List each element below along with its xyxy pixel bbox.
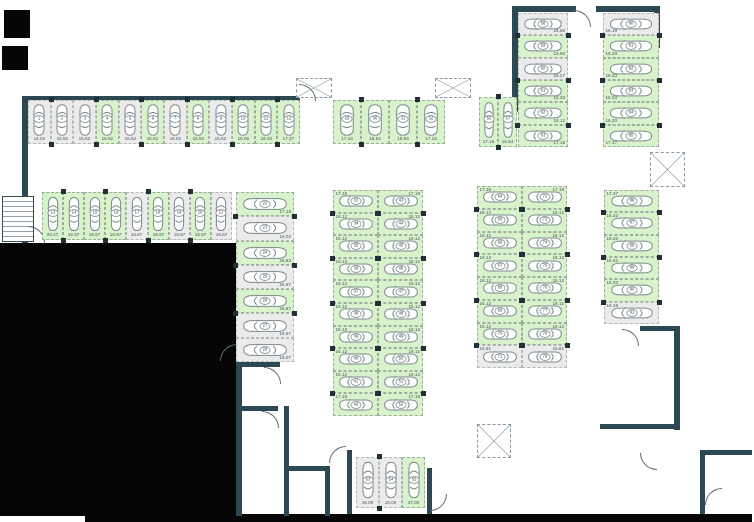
parking-space-65[interactable]: 6516.12 [477, 209, 522, 232]
space-size-label: 16.12 [480, 324, 492, 330]
parking-space-85[interactable]: 8517.37 [603, 125, 659, 147]
space-size-label: 16.67 [128, 232, 146, 238]
door-swing-icon [705, 488, 722, 505]
space-size-label: 17.18 [336, 395, 348, 401]
door-swing-icon [329, 446, 346, 463]
parking-space-47[interactable]: 4716.12 [378, 280, 423, 303]
space-size-label: 16.66 [554, 51, 566, 57]
parking-space-67[interactable]: 6716.12 [477, 254, 522, 277]
parking-trio-53-55: 5316.005416.005517.00 [356, 457, 425, 508]
space-size-label: 17.18 [554, 140, 566, 146]
space-size-label: 16.19 [607, 303, 619, 309]
space-size-label: 16.67 [192, 232, 210, 238]
space-size-label: 16.12 [409, 304, 421, 310]
bottom-wall [85, 514, 752, 522]
space-size-label: 16.33 [606, 118, 618, 124]
wall-segment [236, 406, 278, 411]
parking-space-25[interactable]: 2516.67 [236, 265, 294, 289]
parking-space-62[interactable]: 6216.12 [518, 102, 568, 124]
parking-space-10[interactable]: 1016.06 [232, 100, 255, 144]
space-number: 49 [395, 333, 406, 341]
parking-col-58-63: 5816.655916.666016.276116.336216.126317.… [518, 13, 568, 147]
parking-space-20[interactable]: 2016.67 [190, 192, 211, 240]
parking-space-90[interactable]: 9016.33 [604, 279, 659, 301]
space-size-label: 16.33 [606, 73, 618, 79]
parking-space-87[interactable]: 8716.33 [604, 212, 659, 234]
space-size-label: 16.67 [65, 232, 83, 238]
space-number: 47 [395, 288, 406, 296]
space-size-label: 16.12 [336, 259, 348, 265]
parking-col-22-28: 2217.182316.022416.632516.672616.672716.… [236, 192, 294, 362]
space-size-label: 16.12 [336, 304, 348, 310]
space-number: 48 [395, 310, 406, 318]
space-size-label: 17.37 [279, 136, 298, 142]
space-size-label: 14.04 [30, 136, 49, 142]
space-number: 70 [494, 330, 505, 338]
parking-space-36[interactable]: 3616.12 [333, 258, 378, 281]
parking-space-50[interactable]: 5016.12 [378, 348, 423, 371]
vent-shaft-icon [477, 424, 511, 458]
parking-space-3[interactable]: 315.52 [73, 100, 96, 144]
parking-space-69[interactable]: 6916.12 [477, 300, 522, 323]
space-size-label: 16.12 [553, 301, 565, 307]
space-size-label: 16.12 [553, 278, 565, 284]
space-number: 86 [626, 197, 637, 205]
parking-space-24[interactable]: 2416.63 [236, 241, 294, 265]
vent-shaft-icon [435, 78, 471, 98]
parking-space-83[interactable]: 8316.33 [603, 80, 659, 102]
parking-space-58[interactable]: 5816.65 [518, 13, 568, 35]
space-size-label: 16.81 [480, 346, 492, 352]
parking-space-21[interactable]: 2116.67 [211, 192, 232, 240]
door-swing-icon [262, 411, 279, 428]
space-size-label: 15.52 [189, 136, 208, 142]
parking-row-1-12: 114.04215.52315.52415.52515.52615.52715.… [28, 100, 300, 144]
door-swing-icon [264, 367, 281, 384]
space-size-label: 17.16 [335, 136, 359, 142]
space-size-label: 16.65 [554, 29, 566, 35]
door-swing-icon [640, 453, 657, 470]
space-number: 43 [395, 197, 406, 205]
space-size-label: 16.54 [363, 136, 387, 142]
parking-space-37[interactable]: 3716.12 [333, 280, 378, 303]
parking-space-26[interactable]: 2616.67 [236, 289, 294, 313]
space-number: 60 [537, 65, 548, 73]
parking-space-43[interactable]: 4317.18 [378, 190, 423, 213]
space-size-label: 16.00 [381, 500, 400, 506]
wall-segment [284, 406, 289, 516]
parking-space-45[interactable]: 4516.12 [378, 235, 423, 258]
parking-space-88[interactable]: 8816.33 [604, 235, 659, 257]
space-size-label: 16.12 [409, 349, 421, 355]
space-size-label: 16.67 [149, 232, 167, 238]
space-number: 36 [350, 265, 361, 273]
space-number: 82 [625, 65, 636, 73]
space-size-label: 17.18 [480, 187, 492, 193]
space-number: 65 [494, 216, 505, 224]
parking-space-54[interactable]: 5416.00 [379, 457, 402, 508]
space-size-label: 17.00 [404, 500, 423, 506]
wall-segment [347, 450, 352, 514]
space-size-label: 16.67 [280, 331, 292, 337]
parking-space-74[interactable]: 7416.12 [522, 232, 567, 255]
space-size-label: 17.18 [280, 210, 292, 216]
space-number: 67 [494, 262, 505, 270]
space-size-label: 16.81 [553, 346, 565, 352]
parking-col-43-52: 4317.184416.124516.124616.124716.124816.… [378, 190, 423, 416]
space-size-label: 16.12 [336, 214, 348, 220]
space-size-label: 16.33 [607, 214, 619, 220]
parking-space-6[interactable]: 615.52 [141, 100, 164, 144]
space-number: 46 [395, 265, 406, 273]
space-size-label: 16.33 [607, 236, 619, 242]
space-number: 52 [395, 401, 406, 409]
parking-space-61[interactable]: 6116.33 [518, 80, 568, 102]
parking-space-81[interactable]: 8116.33 [603, 35, 659, 57]
parking-space-19[interactable]: 1916.67 [169, 192, 190, 240]
parking-space-82[interactable]: 8216.33 [603, 58, 659, 80]
space-number: 79 [539, 353, 550, 361]
parking-space-22[interactable]: 2217.18 [236, 192, 294, 216]
space-number: 73 [539, 216, 550, 224]
parking-space-60[interactable]: 6016.27 [518, 58, 568, 80]
parking-space-13[interactable]: 1320.27 [42, 192, 63, 240]
parking-space-27[interactable]: 2716.67 [236, 313, 294, 337]
space-number: 77 [539, 307, 550, 315]
parking-space-71[interactable]: 7116.81 [477, 345, 522, 368]
wall-segment [674, 326, 680, 430]
space-number: 71 [494, 353, 505, 361]
door-swing-icon [574, 10, 591, 27]
space-size-label: 16.12 [336, 282, 348, 288]
space-size-label: 17.18 [336, 191, 348, 197]
parking-space-46[interactable]: 4616.12 [378, 258, 423, 281]
obscured-area [4, 10, 30, 38]
parking-floor-plan: 114.04215.52315.52415.52515.52615.52715.… [0, 0, 754, 522]
space-size-label: 16.12 [553, 233, 565, 239]
parking-space-23[interactable]: 2316.02 [236, 216, 294, 240]
space-size-label: 17.18 [553, 187, 565, 193]
parking-pair-56-57: 5617.165716.54 [479, 97, 517, 147]
parking-space-59[interactable]: 5916.66 [518, 35, 568, 57]
space-number: 24 [259, 249, 270, 257]
wall-segment [242, 362, 280, 367]
space-number: 88 [626, 242, 637, 250]
space-size-label: 16.12 [554, 118, 566, 124]
space-size-label: 16.33 [257, 136, 276, 142]
parking-space-80[interactable]: 8016.19 [603, 13, 659, 35]
space-number: 85 [625, 132, 636, 140]
wall-segment [284, 466, 330, 471]
parking-space-1[interactable]: 114.04 [28, 100, 51, 144]
space-size-label: 15.52 [121, 136, 140, 142]
space-size-label: 17.16 [481, 139, 497, 145]
space-number: 14 [68, 209, 79, 217]
space-size-label: 15.52 [143, 136, 162, 142]
space-size-label: 16.33 [606, 96, 618, 102]
space-size-label: 15.52 [75, 136, 94, 142]
space-size-label: 16.63 [280, 258, 292, 264]
space-size-label: 16.67 [213, 232, 231, 238]
parking-col-80-85: 8016.198116.338216.338316.338416.338517.… [603, 13, 659, 147]
parking-space-51[interactable]: 5116.12 [378, 371, 423, 394]
parking-space-91[interactable]: 9116.19 [604, 302, 659, 324]
parking-row-29-32: 2917.163016.543116.543217.16 [333, 100, 445, 144]
space-number: 56 [483, 115, 494, 123]
space-size-label: 16.54 [391, 136, 415, 142]
space-size-label: 16.12 [480, 233, 492, 239]
space-size-label: 16.67 [280, 282, 292, 288]
parking-space-28[interactable]: 2816.07 [236, 338, 294, 362]
space-number: 37 [350, 288, 361, 296]
space-size-label: 16.33 [554, 96, 566, 102]
space-number: 25 [259, 273, 270, 281]
space-size-label: 16.12 [553, 210, 565, 216]
parking-space-70[interactable]: 7016.12 [477, 323, 522, 346]
parking-space-29[interactable]: 2917.16 [333, 100, 361, 144]
space-number: 53 [362, 476, 373, 484]
parking-col-86-91: 8617.378716.338816.338916.339016.339116.… [604, 190, 659, 324]
parking-space-9[interactable]: 915.52 [209, 100, 232, 144]
parking-space-77[interactable]: 7716.12 [522, 300, 567, 323]
parking-space-48[interactable]: 4816.12 [378, 303, 423, 326]
space-size-label: 17.18 [409, 395, 421, 401]
parking-space-7[interactable]: 715.52 [164, 100, 187, 144]
space-number: 91 [626, 309, 637, 317]
obscured-area [0, 243, 237, 516]
space-size-label: 16.12 [336, 372, 348, 378]
space-size-label: 16.67 [170, 232, 188, 238]
space-size-label: 16.02 [280, 234, 292, 240]
space-number: 44 [395, 220, 406, 228]
parking-space-33[interactable]: 3317.18 [333, 190, 378, 213]
space-number: 57 [502, 115, 513, 123]
space-number: 41 [350, 378, 361, 386]
parking-space-4[interactable]: 415.52 [96, 100, 119, 144]
space-number: 78 [539, 330, 550, 338]
space-number: 75 [539, 262, 550, 270]
space-number: 33 [350, 197, 361, 205]
parking-space-18[interactable]: 1816.67 [148, 192, 169, 240]
space-size-label: 16.12 [409, 372, 421, 378]
space-number: 39 [350, 333, 361, 341]
space-size-label: 16.06 [234, 136, 253, 142]
parking-space-42[interactable]: 4217.18 [333, 393, 378, 416]
parking-col-64-71: 6417.186516.126616.126716.126816.126916.… [477, 186, 522, 368]
vent-shaft-icon [650, 152, 685, 187]
parking-space-63[interactable]: 6317.18 [518, 125, 568, 147]
space-size-label: 16.12 [336, 327, 348, 333]
parking-space-12[interactable]: 1217.37 [277, 100, 300, 144]
space-number: 66 [494, 239, 505, 247]
space-size-label: 16.12 [336, 236, 348, 242]
space-size-label: 16.12 [480, 301, 492, 307]
space-number: 38 [350, 310, 361, 318]
wall-segment [512, 6, 576, 12]
parking-space-16[interactable]: 1616.67 [105, 192, 126, 240]
parking-space-86[interactable]: 8617.37 [604, 190, 659, 212]
space-size-label: 16.33 [607, 258, 619, 264]
parking-space-73[interactable]: 7316.12 [522, 209, 567, 232]
space-size-label: 16.12 [336, 349, 348, 355]
parking-space-2[interactable]: 215.52 [51, 100, 74, 144]
parking-space-39[interactable]: 3916.12 [333, 326, 378, 349]
space-size-label: 17.37 [607, 191, 619, 197]
wall-segment [596, 6, 660, 12]
space-size-label: 16.07 [280, 355, 292, 361]
parking-space-75[interactable]: 7516.12 [522, 254, 567, 277]
space-size-label: 15.52 [98, 136, 117, 142]
space-size-label: 16.33 [606, 51, 618, 57]
parking-col-72-79: 7217.187316.127416.127516.127616.127716.… [522, 186, 567, 368]
space-size-label: 16.12 [553, 255, 565, 261]
wall-segment [700, 450, 752, 455]
parking-space-68[interactable]: 6816.12 [477, 277, 522, 300]
parking-space-15[interactable]: 1516.67 [84, 192, 105, 240]
parking-space-14[interactable]: 1416.67 [63, 192, 84, 240]
parking-space-38[interactable]: 3816.12 [333, 303, 378, 326]
parking-col-33-42: 3317.183416.123516.123616.123716.123816.… [333, 190, 378, 416]
space-number: 55 [408, 476, 419, 484]
parking-space-49[interactable]: 4916.12 [378, 326, 423, 349]
space-size-label: 16.12 [409, 259, 421, 265]
obscured-area [2, 46, 28, 70]
space-size-label: 16.67 [280, 307, 292, 313]
space-size-label: 16.12 [480, 210, 492, 216]
parking-space-41[interactable]: 4116.12 [333, 371, 378, 394]
parking-space-11[interactable]: 1116.33 [255, 100, 278, 144]
space-number: 74 [539, 239, 550, 247]
space-size-label: 17.18 [409, 191, 421, 197]
parking-space-53[interactable]: 5316.00 [356, 457, 379, 508]
space-number: 28 [259, 346, 270, 354]
space-number: 34 [350, 220, 361, 228]
parking-space-79[interactable]: 7916.81 [522, 345, 567, 368]
space-size-label: 15.52 [211, 136, 230, 142]
space-size-label: 16.12 [409, 214, 421, 220]
space-size-label: 15.52 [166, 136, 185, 142]
space-size-label: 16.12 [480, 255, 492, 261]
parking-space-17[interactable]: 1716.67 [126, 192, 147, 240]
space-number: 69 [494, 307, 505, 315]
space-number: 51 [395, 378, 406, 386]
parking-space-52[interactable]: 5217.18 [378, 393, 423, 416]
space-size-label: 17.37 [606, 140, 618, 146]
space-size-label: 16.19 [606, 29, 618, 35]
space-size-label: 16.27 [554, 73, 566, 79]
space-size-label: 16.12 [409, 327, 421, 333]
space-size-label: 16.12 [553, 324, 565, 330]
space-number: 42 [350, 401, 361, 409]
parking-space-30[interactable]: 3016.54 [361, 100, 389, 144]
parking-space-5[interactable]: 515.52 [119, 100, 142, 144]
space-size-label: 15.52 [52, 136, 71, 142]
parking-space-72[interactable]: 7217.18 [522, 186, 567, 209]
parking-space-34[interactable]: 3416.12 [333, 213, 378, 236]
parking-space-66[interactable]: 6616.12 [477, 232, 522, 255]
parking-space-40[interactable]: 4016.12 [333, 348, 378, 371]
parking-space-55[interactable]: 5517.00 [402, 457, 425, 508]
parking-space-78[interactable]: 7816.12 [522, 323, 567, 346]
parking-space-76[interactable]: 7616.12 [522, 277, 567, 300]
space-size-label: 16.54 [500, 139, 516, 145]
parking-space-44[interactable]: 4416.12 [378, 213, 423, 236]
door-swing-icon [430, 494, 447, 511]
space-size-label: 16.00 [358, 500, 377, 506]
space-size-label: 16.12 [409, 236, 421, 242]
wall-segment [325, 466, 330, 516]
wall-segment [236, 362, 242, 516]
parking-space-32[interactable]: 3217.16 [417, 100, 445, 144]
door-swing-icon [622, 329, 639, 346]
space-size-label: 16.12 [480, 278, 492, 284]
parking-space-64[interactable]: 6417.18 [477, 186, 522, 209]
parking-space-35[interactable]: 3516.12 [333, 235, 378, 258]
space-size-label: 16.67 [86, 232, 104, 238]
space-size-label: 16.12 [409, 282, 421, 288]
parking-space-84[interactable]: 8416.33 [603, 102, 659, 124]
space-number: 13 [47, 209, 58, 217]
space-number: 27 [259, 322, 270, 330]
space-number: 54 [385, 476, 396, 484]
space-size-label: 16.67 [107, 232, 125, 238]
parking-space-56[interactable]: 5617.16 [479, 97, 498, 147]
space-size-label: 20.27 [44, 232, 62, 238]
space-size-label: 16.33 [607, 281, 619, 287]
wall-segment [600, 424, 680, 429]
space-number: 89 [626, 264, 637, 272]
space-number: 63 [537, 132, 548, 140]
parking-row-13-21: 1320.271416.671516.671616.671716.671816.… [42, 192, 232, 240]
parking-space-31[interactable]: 3116.54 [389, 100, 417, 144]
parking-space-89[interactable]: 8916.33 [604, 257, 659, 279]
space-size-label: 17.16 [419, 136, 443, 142]
parking-space-8[interactable]: 815.52 [187, 100, 210, 144]
